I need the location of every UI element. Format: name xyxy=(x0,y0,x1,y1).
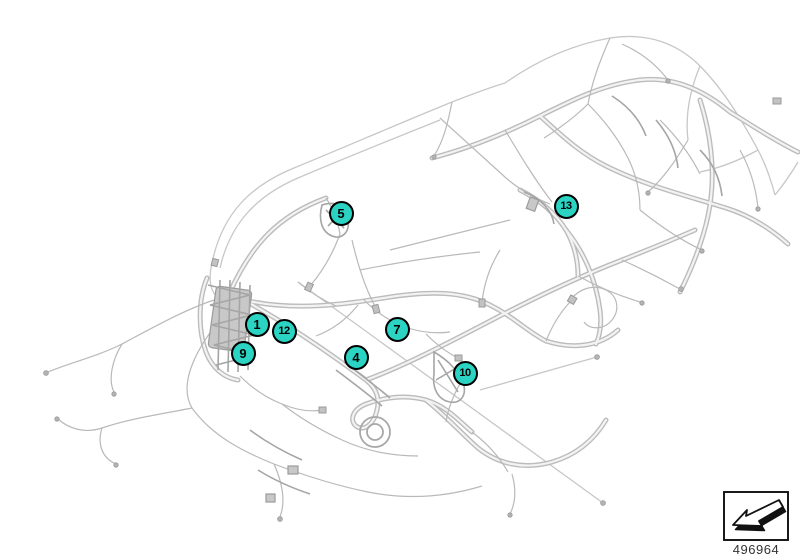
callout-5[interactable]: 5 xyxy=(329,201,354,226)
callout-13[interactable]: 13 xyxy=(554,194,579,219)
callout-12[interactable]: 12 xyxy=(272,319,297,344)
parts-diagram-canvas: 51311294710 496964 xyxy=(0,0,800,560)
callout-4[interactable]: 4 xyxy=(344,345,369,370)
change-pointer-arrow-icon xyxy=(723,491,789,541)
diagram-part-number: 496964 xyxy=(723,542,789,557)
callout-7[interactable]: 7 xyxy=(385,317,410,342)
callout-10[interactable]: 10 xyxy=(453,361,478,386)
diagram-footer-mark: 496964 xyxy=(723,491,789,557)
callout-1[interactable]: 1 xyxy=(245,312,270,337)
callout-9[interactable]: 9 xyxy=(231,341,256,366)
callout-layer: 51311294710 xyxy=(0,0,800,560)
